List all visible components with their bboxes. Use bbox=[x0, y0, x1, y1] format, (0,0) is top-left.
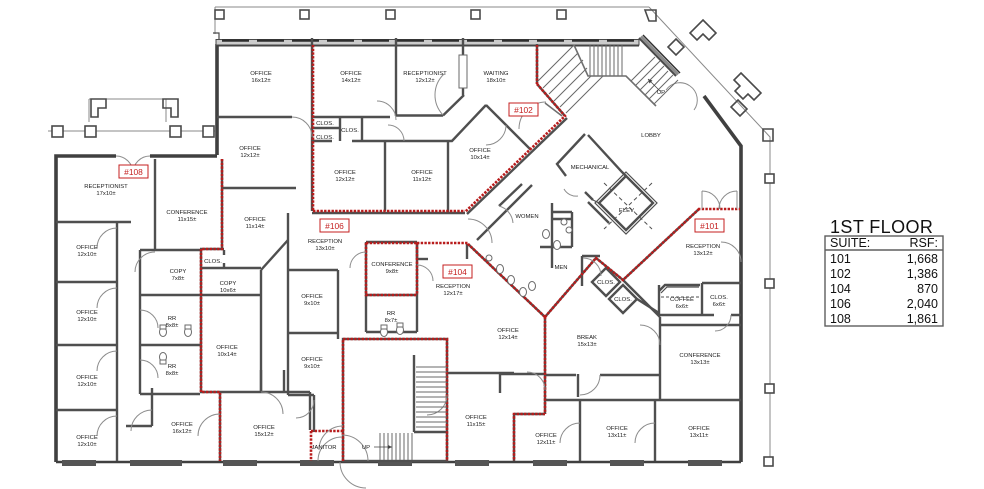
svg-text:13x13±: 13x13± bbox=[690, 360, 710, 366]
svg-text:OFFICE: OFFICE bbox=[340, 71, 362, 77]
svg-text:OFFICE: OFFICE bbox=[253, 425, 275, 431]
svg-text:#106: #106 bbox=[325, 221, 344, 231]
svg-text:12x10±: 12x10± bbox=[77, 442, 97, 448]
svg-text:13x10±: 13x10± bbox=[315, 246, 335, 252]
svg-text:13x12±: 13x12± bbox=[693, 251, 713, 257]
svg-text:OFFICE: OFFICE bbox=[239, 146, 261, 152]
svg-text:RR: RR bbox=[387, 311, 396, 317]
svg-text:12x12±: 12x12± bbox=[240, 153, 260, 159]
svg-text:WAITING: WAITING bbox=[484, 71, 509, 77]
svg-text:8x8±: 8x8± bbox=[166, 323, 179, 329]
svg-text:9x10±: 9x10± bbox=[304, 364, 321, 370]
svg-text:870: 870 bbox=[917, 282, 938, 296]
svg-text:1,386: 1,386 bbox=[907, 267, 938, 281]
svg-text:UP: UP bbox=[657, 90, 665, 96]
svg-text:11x15±: 11x15± bbox=[178, 217, 198, 223]
svg-text:OFFICE: OFFICE bbox=[301, 357, 323, 363]
svg-text:101: 101 bbox=[830, 252, 851, 266]
svg-text:15x12±: 15x12± bbox=[254, 432, 274, 438]
svg-text:10x14±: 10x14± bbox=[470, 155, 490, 161]
svg-text:OFFICE: OFFICE bbox=[688, 426, 710, 432]
svg-text:COFFEE: COFFEE bbox=[670, 297, 694, 303]
svg-text:CONFERENCE: CONFERENCE bbox=[371, 262, 412, 268]
svg-text:106: 106 bbox=[830, 297, 851, 311]
svg-text:102: 102 bbox=[830, 267, 851, 281]
svg-text:MEN: MEN bbox=[554, 265, 567, 271]
svg-text:RR: RR bbox=[168, 364, 177, 370]
svg-text:RSF:: RSF: bbox=[910, 236, 938, 250]
svg-text:10x6±: 10x6± bbox=[220, 288, 237, 294]
svg-text:8x8±: 8x8± bbox=[166, 371, 179, 377]
svg-text:OFFICE: OFFICE bbox=[465, 415, 487, 421]
svg-text:COPY: COPY bbox=[170, 269, 187, 275]
svg-text:COPY: COPY bbox=[220, 281, 237, 287]
svg-text:108: 108 bbox=[830, 312, 851, 326]
svg-text:6x6±: 6x6± bbox=[713, 302, 726, 308]
svg-text:17x10±: 17x10± bbox=[96, 191, 116, 197]
svg-text:OFFICE: OFFICE bbox=[250, 71, 272, 77]
svg-text:8x7±: 8x7± bbox=[385, 318, 398, 324]
svg-text:1ST FLOOR: 1ST FLOOR bbox=[830, 217, 933, 237]
svg-text:OFFICE: OFFICE bbox=[216, 345, 238, 351]
svg-text:CLOS.: CLOS. bbox=[316, 121, 334, 127]
svg-text:ELEV.: ELEV. bbox=[619, 208, 636, 214]
svg-text:JANITOR: JANITOR bbox=[311, 445, 336, 451]
svg-text:CONFERENCE: CONFERENCE bbox=[166, 210, 207, 216]
svg-text:BREAK: BREAK bbox=[577, 335, 597, 341]
svg-text:12x10±: 12x10± bbox=[77, 252, 97, 258]
svg-text:RR: RR bbox=[168, 316, 177, 322]
svg-text:OFFICE: OFFICE bbox=[76, 245, 98, 251]
svg-text:1,668: 1,668 bbox=[907, 252, 938, 266]
svg-text:OFFICE: OFFICE bbox=[76, 310, 98, 316]
svg-text:OFFICE: OFFICE bbox=[606, 426, 628, 432]
svg-text:12x12±: 12x12± bbox=[335, 177, 355, 183]
svg-text:11x14±: 11x14± bbox=[246, 224, 266, 230]
svg-text:#102: #102 bbox=[514, 105, 533, 115]
svg-text:12x10±: 12x10± bbox=[77, 317, 97, 323]
svg-text:CLOS.: CLOS. bbox=[204, 259, 222, 265]
svg-text:9x10±: 9x10± bbox=[304, 301, 321, 307]
svg-text:OFFICE: OFFICE bbox=[535, 433, 557, 439]
svg-text:CONFERENCE: CONFERENCE bbox=[679, 353, 720, 359]
svg-text:12x10±: 12x10± bbox=[77, 382, 97, 388]
svg-text:18x10±: 18x10± bbox=[486, 78, 506, 84]
svg-text:1,861: 1,861 bbox=[907, 312, 938, 326]
svg-text:OFFICE: OFFICE bbox=[76, 375, 98, 381]
svg-text:CLOS.: CLOS. bbox=[710, 295, 728, 301]
svg-text:7x8±: 7x8± bbox=[172, 276, 185, 282]
svg-text:WOMEN: WOMEN bbox=[515, 214, 538, 220]
svg-text:CLOS.: CLOS. bbox=[597, 280, 615, 286]
svg-text:OFFICE: OFFICE bbox=[244, 217, 266, 223]
svg-text:RECEPTION: RECEPTION bbox=[686, 244, 720, 250]
svg-text:6x6±: 6x6± bbox=[676, 304, 689, 310]
svg-text:CLOS.: CLOS. bbox=[341, 128, 359, 134]
svg-text:LOBBY: LOBBY bbox=[641, 133, 661, 139]
svg-text:104: 104 bbox=[830, 282, 851, 296]
svg-text:UP: UP bbox=[362, 445, 370, 451]
svg-text:13x11±: 13x11± bbox=[690, 433, 710, 439]
svg-text:RECEPTIONIST: RECEPTIONIST bbox=[84, 184, 128, 190]
svg-text:12x12±: 12x12± bbox=[415, 78, 435, 84]
svg-text:12x11±: 12x11± bbox=[537, 440, 557, 446]
svg-text:#101: #101 bbox=[700, 221, 719, 231]
svg-text:9x8±: 9x8± bbox=[386, 269, 399, 275]
svg-text:15x13±: 15x13± bbox=[577, 342, 597, 348]
svg-text:16x12±: 16x12± bbox=[172, 429, 192, 435]
svg-text:13x11±: 13x11± bbox=[608, 433, 628, 439]
svg-text:14x12±: 14x12± bbox=[341, 78, 361, 84]
svg-text:RECEPTION: RECEPTION bbox=[436, 284, 470, 290]
svg-text:10x14±: 10x14± bbox=[217, 352, 237, 358]
svg-text:12x17±: 12x17± bbox=[443, 291, 463, 297]
svg-text:#104: #104 bbox=[448, 267, 467, 277]
svg-text:OFFICE: OFFICE bbox=[411, 170, 433, 176]
svg-text:OFFICE: OFFICE bbox=[171, 422, 193, 428]
svg-text:11x15±: 11x15± bbox=[467, 422, 487, 428]
svg-text:OFFICE: OFFICE bbox=[334, 170, 356, 176]
svg-text:MECHANICAL: MECHANICAL bbox=[571, 165, 610, 171]
svg-text:SUITE:: SUITE: bbox=[830, 236, 870, 250]
svg-text:RECEPTION: RECEPTION bbox=[308, 239, 342, 245]
svg-text:CLOS.: CLOS. bbox=[316, 135, 334, 141]
svg-text:CLOS.: CLOS. bbox=[614, 297, 632, 303]
svg-text:OFFICE: OFFICE bbox=[76, 435, 98, 441]
svg-text:2,040: 2,040 bbox=[907, 297, 938, 311]
svg-text:OFFICE: OFFICE bbox=[497, 328, 519, 334]
svg-text:16x12±: 16x12± bbox=[251, 78, 271, 84]
svg-text:RECEPTIONIST: RECEPTIONIST bbox=[403, 71, 447, 77]
svg-text:OFFICE: OFFICE bbox=[469, 148, 491, 154]
svg-text:11x12±: 11x12± bbox=[413, 177, 433, 183]
svg-text:OFFICE: OFFICE bbox=[301, 294, 323, 300]
svg-text:#108: #108 bbox=[124, 167, 143, 177]
svg-text:12x14±: 12x14± bbox=[498, 335, 518, 341]
